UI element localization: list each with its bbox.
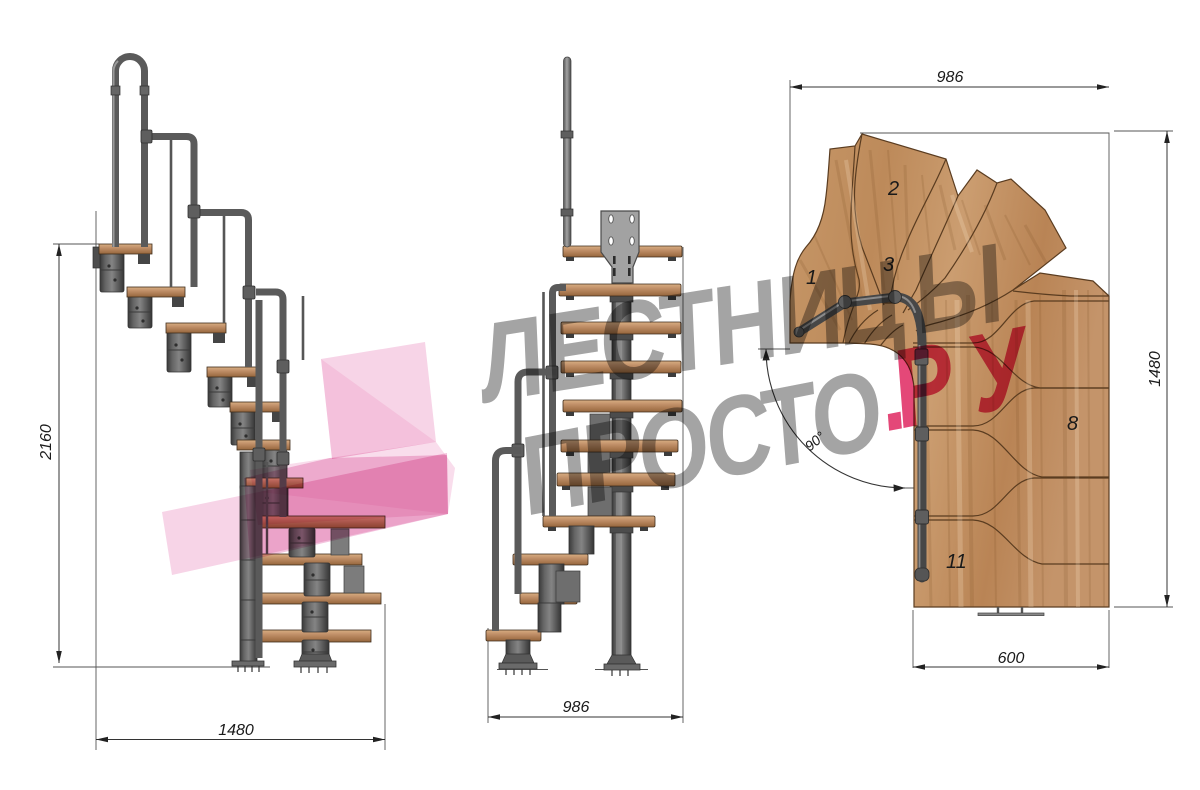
svg-text:1480: 1480 (218, 722, 254, 739)
svg-text:986: 986 (563, 699, 590, 716)
svg-text:1480: 1480 (1147, 351, 1164, 387)
svg-text:2160: 2160 (38, 424, 55, 461)
svg-text:600: 600 (998, 650, 1025, 667)
svg-text:8: 8 (1067, 413, 1078, 435)
svg-text:11: 11 (946, 551, 967, 573)
svg-text:986: 986 (937, 69, 964, 86)
svg-text:2: 2 (887, 178, 899, 200)
